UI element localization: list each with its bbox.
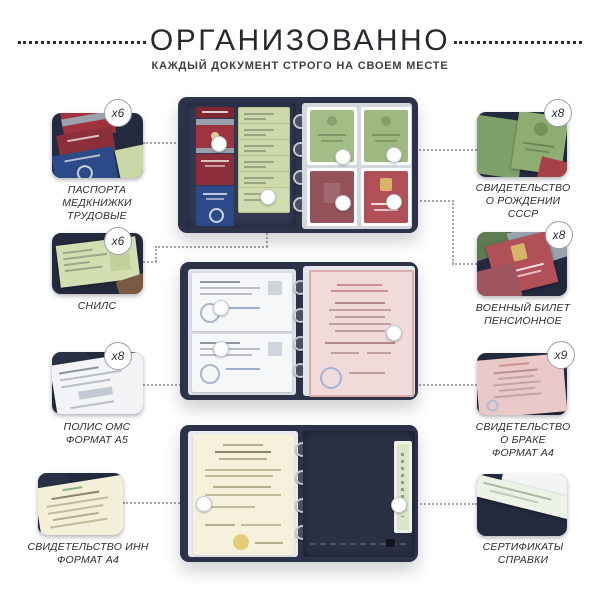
callout-label-passports: ПАСПОРТА МЕДКНИЖКИ ТРУДОВЫЕ [32,184,162,223]
connector-line [155,246,268,248]
count-value: x8 [553,228,566,242]
inn-certificate-doc [193,434,294,555]
count-value: x8 [552,106,565,120]
page-subtitle: КАЖДЫЙ ДОКУМЕНТ СТРОГО НА СВОЕМ МЕСТЕ [0,60,600,72]
callout-label-military: ВОЕННЫЙ БИЛЕТ ПЕНСИОННОЕ [458,302,588,328]
callout-label-oms: ПОЛИС ОМС ФОРМАТ А5 [32,421,162,447]
pocket [361,168,411,226]
connector-line [452,200,454,264]
thumbnail-inn [38,473,123,535]
callout-label-ussr-birth: СВИДЕТЕЛЬСТВО О РОЖДЕНИИ СССР [458,182,588,221]
blue-passport [196,186,234,226]
thumbnail-passports [52,113,143,178]
binder-photo-passports [178,97,418,233]
count-badge: x8 [104,342,132,370]
thumbnail-certificates [477,474,567,536]
callout-label-marriage: СВИДЕТЕЛЬСТВО О БРАКЕ ФОРМАТ А4 [458,421,588,460]
connector-dot [391,497,407,513]
count-badge: x8 [544,99,572,127]
count-badge: x8 [545,221,573,249]
title-rule-left [18,41,146,44]
connector-dot [213,300,229,316]
count-value: x6 [112,234,125,248]
title-rule-right [454,41,582,44]
connector-dot [335,195,351,211]
medbook-cover [196,107,234,118]
connector-line [155,246,157,262]
oms-policy-doc [192,273,292,331]
connector-dot [386,325,402,341]
zipper-pull-icon [386,539,395,547]
product-infographic: ОРГАНИЗОВАННО КАЖДЫЙ ДОКУМЕНТ СТРОГО НА … [0,0,600,600]
count-value: x9 [555,348,568,362]
callout-label-snils: СНИЛС [32,300,162,313]
pocket [307,168,357,226]
connector-dot [335,149,351,165]
connector-dot [213,341,229,357]
count-value: x6 [112,106,125,120]
binder-photo-a4 [180,425,418,562]
connector-dot [260,189,276,205]
oms-policy-doc [192,334,292,392]
connector-line [452,263,477,265]
connector-dot [386,147,402,163]
count-badge: x6 [104,227,132,255]
workbook-cover [196,154,234,185]
side-pocket [394,441,412,533]
callout-label-inn: СВИДЕТЕЛЬСТВО ИНН ФОРМАТ А4 [8,541,168,567]
connector-dot [196,496,212,512]
callout-label-certificates: СЕРТИФИКАТЫ СПРАВКИ [458,541,588,567]
connector-dot [386,194,402,210]
count-value: x8 [112,349,125,363]
connector-dot [211,136,227,152]
count-badge: x9 [547,341,575,369]
count-badge: x6 [104,99,132,127]
binder-photo-certificates [180,262,418,400]
